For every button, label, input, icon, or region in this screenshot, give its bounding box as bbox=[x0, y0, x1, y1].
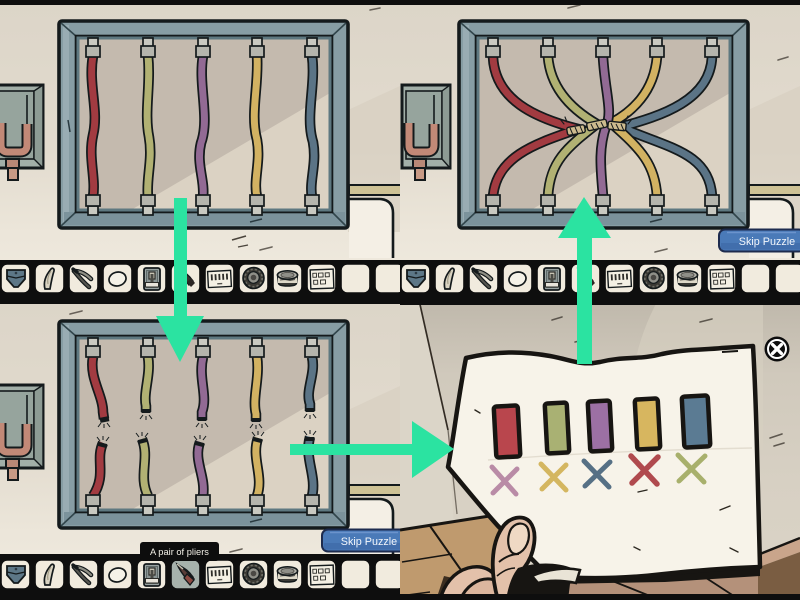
svg-text:A pair of pliers: A pair of pliers bbox=[150, 547, 209, 557]
svg-text:Skip Puzzle: Skip Puzzle bbox=[739, 236, 795, 248]
svg-text:Skip Puzzle: Skip Puzzle bbox=[341, 536, 397, 548]
